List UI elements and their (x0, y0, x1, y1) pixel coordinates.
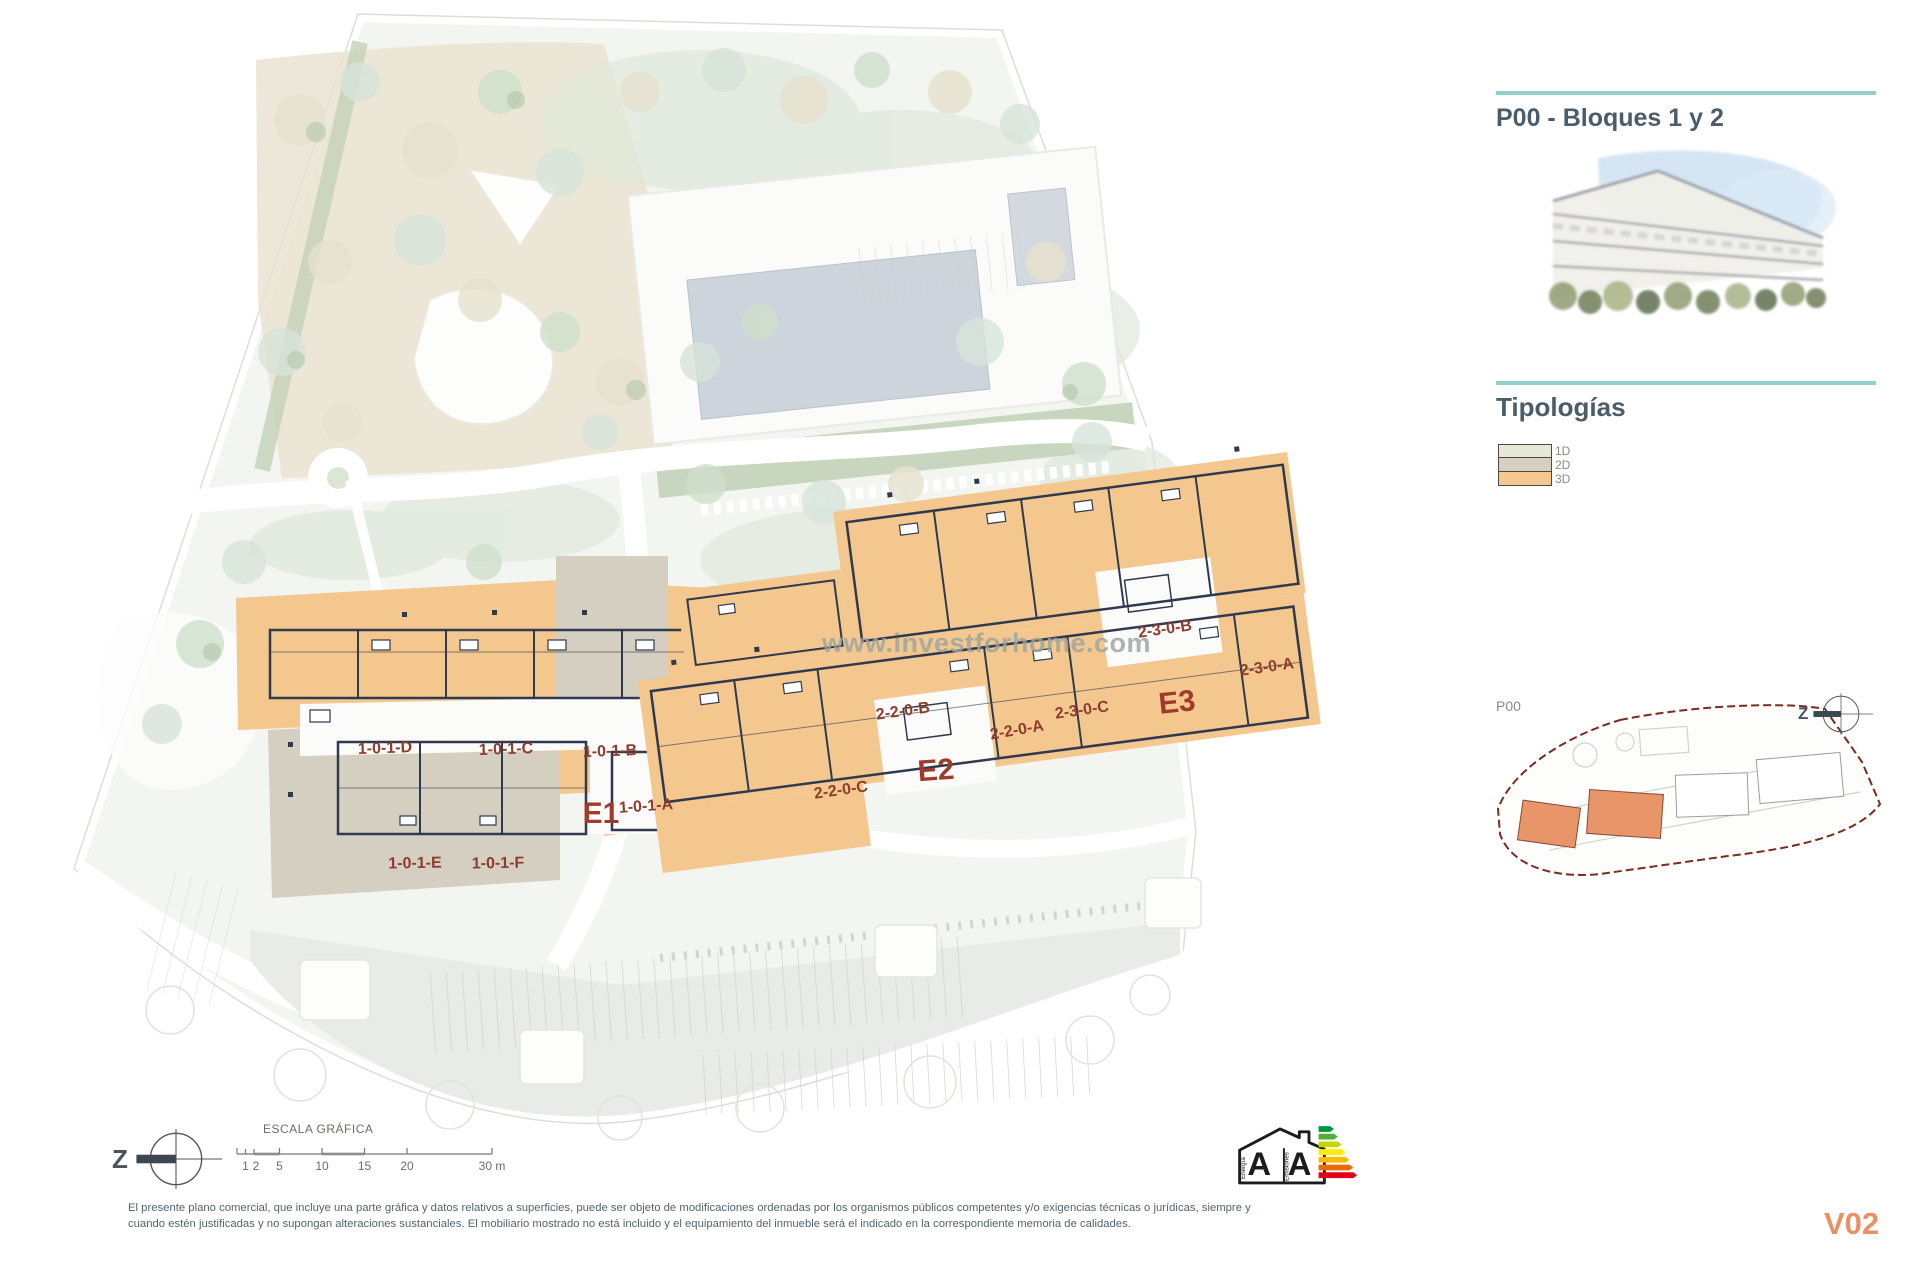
scale-bar-title: ESCALA GRÁFICA (263, 1122, 373, 1136)
scale-tick-30m: 30 m (479, 1159, 506, 1173)
plan-compass-letter: Z (112, 1144, 128, 1175)
compass-icon (130, 1128, 222, 1190)
legend-row-1d: 1D (1498, 444, 1570, 458)
legend-swatch-2d (1498, 458, 1552, 472)
energy-rating-icon: A A Energía Emisiones (1230, 1114, 1360, 1194)
minimap-compass-letter: Z (1798, 704, 1808, 724)
legend-label-3d: 3D (1552, 472, 1570, 486)
legend-swatch-1d (1498, 444, 1552, 458)
accent-rule-bottom (1496, 381, 1876, 385)
emissions-letter: A (1288, 1145, 1312, 1182)
scale-tick-5: 5 (276, 1159, 283, 1173)
plan-compass: Z (112, 1128, 222, 1190)
scale-tick-10: 10 (315, 1159, 329, 1173)
energy-letter: A (1247, 1145, 1271, 1182)
legend-label-2d: 2D (1552, 458, 1570, 472)
site-plan-drawing (0, 0, 1500, 1280)
scale-tick-15: 15 (358, 1159, 372, 1173)
minimap-compass: Z (1798, 692, 1873, 736)
typologies-title: Tipologías (1496, 392, 1626, 423)
scale-tick-1: 1 (242, 1159, 249, 1173)
building-watercolor-image (1538, 146, 1838, 316)
energy-word: Energía (1240, 1157, 1247, 1179)
block-label-e3: E3 (1157, 684, 1197, 722)
legend-row-2d: 2D (1498, 458, 1570, 472)
emissions-word: Emisiones (1284, 1152, 1291, 1181)
unit-label-1-0-1-F: 1-0-1-F (472, 855, 525, 874)
legend-row-3d: 3D (1498, 472, 1570, 486)
page: www.investforhome.com 1-0-1-D 1-0-1-C 1-… (0, 0, 1920, 1280)
minimap-drawing (1490, 700, 1900, 965)
legend-label-1d: 1D (1552, 444, 1570, 458)
unit-label-1-0-1-A: 1-0-1-A (618, 796, 673, 818)
unit-label-1-0-1-C: 1-0-1-C (479, 740, 534, 760)
version-badge: V02 (1824, 1206, 1879, 1242)
disclaimer-line-2: cuando estén justificadas y no supongan … (128, 1218, 1131, 1230)
typology-legend: 1D 2D 3D (1498, 444, 1570, 486)
scale-tick-20: 20 (400, 1159, 414, 1173)
unit-label-1-0-1-E: 1-0-1-E (388, 855, 442, 874)
unit-label-1-0-1-D: 1-0-1-D (358, 739, 413, 759)
scale-tick-2: 2 (253, 1159, 260, 1173)
disclaimer-line-1: El presente plano comercial, que incluye… (128, 1202, 1251, 1214)
compass-icon (1809, 692, 1873, 736)
watermark: www.investforhome.com (822, 628, 1151, 659)
block-label-e1: E1 (583, 797, 620, 831)
accent-rule-top (1496, 91, 1876, 95)
legend-swatch-3d (1498, 472, 1552, 486)
scale-bar: 1 2 5 10 15 20 30 m (232, 1142, 512, 1178)
unit-label-1-0-1-B: 1-0-1-B (583, 742, 638, 762)
energy-arrows (1319, 1126, 1358, 1178)
block-label-e2: E2 (917, 753, 956, 789)
page-title: P00 - Bloques 1 y 2 (1496, 104, 1724, 133)
